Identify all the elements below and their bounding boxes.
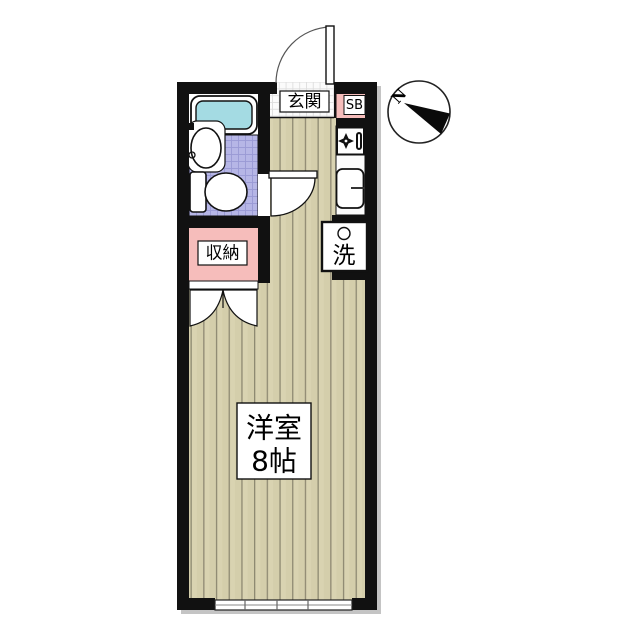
wall-right [365, 82, 377, 610]
kitchen-sink [337, 169, 366, 208]
main-room-name: 洋室 [246, 412, 302, 445]
entrance-door-leaf [326, 26, 334, 84]
stove-knob [357, 133, 361, 149]
wall-bathroom-right-upper [258, 94, 270, 174]
laundry-space: 洗 [322, 222, 367, 271]
storage-label: 収納 [206, 244, 240, 264]
laundry-label: 洗 [333, 243, 356, 269]
wall-stub-below-shoebox [336, 118, 365, 126]
washer-hookup-icon [338, 228, 350, 240]
bathroom-unit [183, 94, 270, 216]
entrance-door-arc [276, 27, 330, 83]
main-room-label-group: 洋室 8帖 [237, 403, 311, 479]
floor-plan-canvas: SB 収納 [0, 0, 640, 640]
entrance-label: 玄関 [288, 92, 322, 112]
wash-basin [191, 128, 221, 168]
main-room-size: 8帖 [251, 445, 297, 478]
shoe-box: SB [334, 94, 365, 118]
storage-closet: 収納 [189, 228, 258, 281]
wall-bottom-left [177, 598, 215, 610]
wall-stub-below-laundry [332, 271, 365, 280]
bathroom-door-leaf [269, 171, 317, 178]
toilet-tank [190, 172, 206, 212]
window [215, 600, 352, 610]
wall-bottom-right [352, 598, 377, 610]
stove [337, 128, 364, 155]
wall-top-left [177, 82, 277, 94]
entrance-label-group: 玄関 [280, 91, 329, 112]
compass: N [388, 81, 450, 143]
wall-bathroom-bottom [189, 216, 270, 228]
entrance-door [276, 26, 334, 84]
toilet-bowl [205, 173, 247, 211]
wall-left [177, 82, 189, 610]
shoe-box-label: SB [346, 98, 363, 113]
